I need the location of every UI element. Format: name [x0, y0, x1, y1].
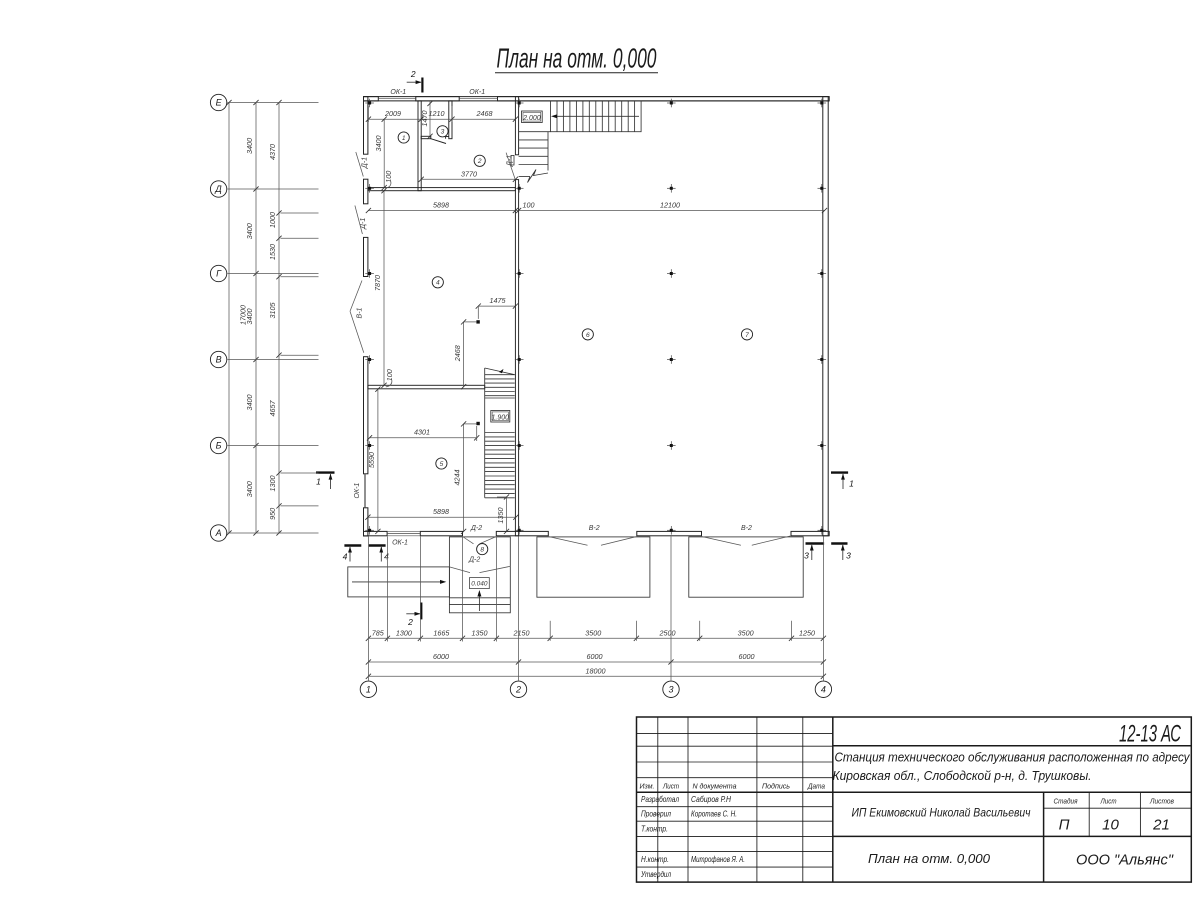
svg-text:3: 3 — [441, 129, 445, 136]
svg-text:Лист: Лист — [1100, 797, 1117, 806]
svg-text:2.000: 2.000 — [522, 115, 541, 122]
svg-text:План на отм. 0,000: План на отм. 0,000 — [497, 43, 657, 74]
svg-text:1350: 1350 — [472, 628, 488, 637]
svg-text:3500: 3500 — [738, 628, 754, 637]
svg-text:В-2: В-2 — [741, 525, 752, 532]
svg-text:6: 6 — [586, 332, 590, 339]
svg-text:21: 21 — [1152, 817, 1170, 834]
svg-text:1530: 1530 — [268, 244, 277, 260]
svg-text:Изм.: Изм. — [640, 782, 655, 791]
svg-text:1250: 1250 — [799, 628, 815, 637]
svg-text:100: 100 — [523, 201, 535, 210]
svg-text:Н.контр.: Н.контр. — [641, 855, 669, 864]
svg-text:2150: 2150 — [513, 628, 530, 637]
svg-text:950: 950 — [268, 508, 277, 520]
svg-text:1470: 1470 — [420, 111, 429, 127]
svg-text:2468: 2468 — [476, 109, 493, 118]
svg-text:В: В — [216, 355, 222, 365]
svg-text:Станция технического обслужива: Станция технического обслуживания распол… — [835, 751, 1191, 765]
svg-text:2: 2 — [410, 69, 416, 79]
svg-text:Митрофанов Я. А.: Митрофанов Я. А. — [691, 855, 745, 864]
svg-text:Разработал: Разработал — [641, 795, 680, 804]
svg-text:100: 100 — [384, 171, 393, 183]
svg-text:5898: 5898 — [433, 507, 449, 516]
svg-text:В-2: В-2 — [589, 525, 600, 532]
svg-text:1: 1 — [316, 477, 321, 487]
svg-text:1: 1 — [849, 479, 854, 489]
svg-text:N документа: N документа — [693, 782, 737, 791]
svg-text:5: 5 — [440, 461, 444, 468]
svg-text:ОК-1: ОК-1 — [354, 483, 361, 499]
svg-text:Подпись: Подпись — [762, 782, 790, 791]
svg-text:3400: 3400 — [245, 481, 254, 497]
svg-text:12100: 12100 — [660, 201, 680, 210]
svg-text:Утвердил: Утвердил — [640, 870, 671, 879]
svg-text:1: 1 — [366, 685, 371, 695]
svg-text:Е: Е — [216, 98, 223, 108]
svg-text:4: 4 — [821, 685, 826, 695]
svg-text:Сабиров Р.Н: Сабиров Р.Н — [691, 795, 731, 804]
svg-text:3400: 3400 — [245, 309, 254, 325]
svg-text:Б: Б — [216, 441, 222, 451]
svg-text:В-1: В-1 — [357, 307, 364, 318]
svg-text:1665: 1665 — [433, 628, 450, 637]
svg-text:ОК-1: ОК-1 — [469, 89, 485, 96]
svg-text:3500: 3500 — [585, 628, 601, 637]
svg-text:Стадия: Стадия — [1054, 797, 1078, 806]
svg-text:Лист: Лист — [662, 782, 679, 791]
svg-text:Листов: Листов — [1149, 797, 1174, 806]
svg-text:ИП Екимовский Николай Васильев: ИП Екимовский Николай Васильевич — [852, 806, 1031, 820]
svg-text:Дата: Дата — [807, 782, 825, 791]
svg-text:6000: 6000 — [587, 652, 603, 661]
svg-text:6000: 6000 — [433, 652, 449, 661]
svg-text:4: 4 — [384, 552, 389, 562]
svg-text:Кировская обл., Слободской р-н: Кировская обл., Слободской р-н, д. Трушк… — [833, 769, 1092, 783]
svg-text:4: 4 — [436, 280, 440, 287]
svg-text:7: 7 — [745, 332, 749, 339]
svg-text:П: П — [1059, 817, 1070, 834]
svg-text:3: 3 — [846, 551, 851, 561]
svg-text:12-13 АС: 12-13 АС — [1119, 721, 1181, 748]
svg-text:3770: 3770 — [461, 169, 477, 178]
svg-text:3400: 3400 — [245, 395, 254, 411]
svg-text:ОК-1: ОК-1 — [392, 540, 408, 547]
svg-text:100: 100 — [385, 369, 394, 381]
svg-text:А: А — [215, 528, 222, 538]
svg-text:1000: 1000 — [268, 212, 277, 228]
svg-text:2: 2 — [515, 685, 521, 695]
svg-text:5590: 5590 — [367, 452, 376, 468]
svg-text:4657: 4657 — [268, 400, 277, 417]
svg-text:4301: 4301 — [414, 427, 430, 436]
svg-text:785: 785 — [372, 628, 385, 637]
svg-text:1300: 1300 — [396, 628, 412, 637]
svg-text:4: 4 — [343, 552, 348, 562]
svg-text:0.040: 0.040 — [471, 580, 488, 587]
svg-text:Проверил: Проверил — [641, 810, 671, 819]
svg-text:3: 3 — [668, 685, 673, 695]
svg-text:3105: 3105 — [268, 302, 277, 319]
svg-text:6000: 6000 — [739, 652, 755, 661]
svg-text:4244: 4244 — [453, 470, 462, 486]
svg-text:1.900: 1.900 — [492, 415, 510, 422]
svg-text:8: 8 — [480, 547, 484, 554]
svg-text:3400: 3400 — [374, 136, 383, 152]
svg-text:План на отм. 0,000: План на отм. 0,000 — [868, 851, 991, 866]
svg-text:Д-1: Д-1 — [362, 157, 369, 169]
svg-text:ООО "Альянс": ООО "Альянс" — [1076, 852, 1174, 869]
svg-text:2468: 2468 — [453, 345, 462, 362]
svg-text:4370: 4370 — [268, 144, 277, 160]
svg-text:Коротаев С. Н.: Коротаев С. Н. — [691, 810, 737, 819]
svg-text:18000: 18000 — [586, 666, 606, 675]
svg-text:3400: 3400 — [245, 223, 254, 239]
svg-text:3400: 3400 — [245, 138, 254, 154]
svg-text:7870: 7870 — [373, 275, 382, 291]
svg-text:2: 2 — [477, 158, 482, 165]
svg-text:10: 10 — [1102, 817, 1119, 834]
svg-text:Т.контр.: Т.контр. — [641, 824, 668, 833]
svg-text:1300: 1300 — [268, 476, 277, 492]
svg-text:3: 3 — [804, 551, 809, 561]
svg-text:2: 2 — [407, 617, 413, 627]
svg-text:ОК-1: ОК-1 — [390, 89, 406, 96]
svg-text:Д: Д — [214, 184, 222, 194]
svg-text:1: 1 — [402, 135, 406, 142]
svg-text:Д-2: Д-2 — [470, 525, 482, 532]
svg-text:1210: 1210 — [429, 109, 445, 118]
svg-text:1475: 1475 — [490, 296, 507, 305]
svg-text:5898: 5898 — [433, 201, 449, 210]
svg-text:1350: 1350 — [496, 508, 505, 524]
svg-text:2500: 2500 — [659, 628, 676, 637]
svg-text:Д-2: Д-2 — [468, 557, 480, 564]
